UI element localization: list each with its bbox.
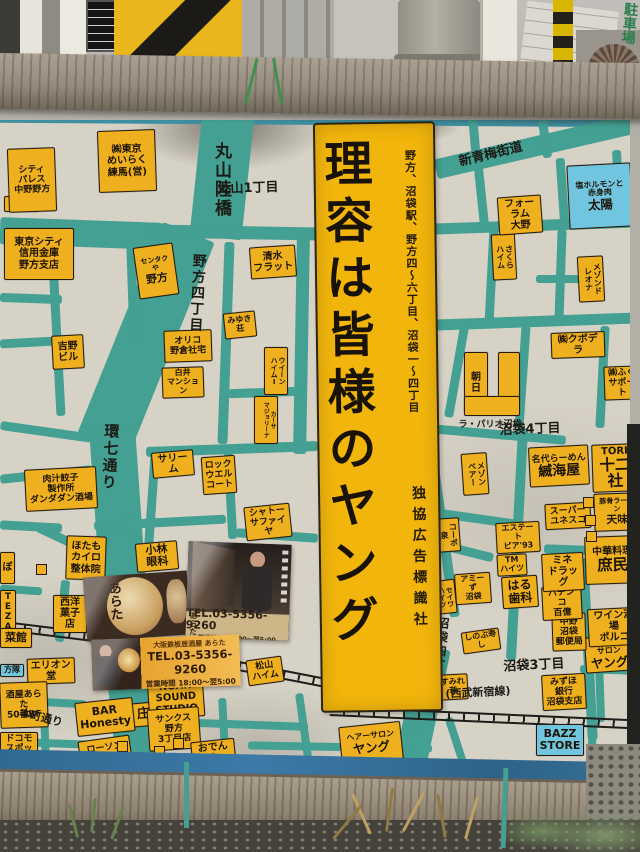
map-label: 西洋 菓子店 (53, 595, 87, 633)
figure-body (95, 656, 118, 687)
map-label: 菜館 (0, 628, 32, 648)
parking-sign: 駐車場 (611, 1, 640, 67)
figure-head (99, 645, 111, 658)
label-text-large: 庶民 (597, 557, 629, 574)
map-label: 吉野 ビル (51, 334, 85, 370)
map-text: 沼袋3丁目 (496, 656, 573, 676)
background-building-2 (334, 0, 400, 62)
figure-body (241, 566, 273, 611)
map-label: みずほ 銀行 沼袋支店 (541, 673, 587, 711)
map-label: 名代らーめん縅海屋 (528, 444, 590, 487)
map-label: ㈱クボデラ (551, 331, 606, 359)
moss-patch (500, 810, 640, 852)
paint-drip (184, 762, 189, 828)
board-right-edge-dark (627, 424, 640, 756)
alley-corridor (191, 541, 236, 611)
map-label: 塩ホルモンと 赤身肉太陽 (566, 162, 633, 229)
map-label: 白井 マンション (161, 366, 204, 398)
map-label: エステート ピア'93 (495, 521, 541, 554)
lantern-glow (117, 648, 140, 673)
door-marker (583, 497, 594, 508)
map-label: センタクや野方 (133, 242, 180, 299)
map-label: シャトー サファイヤ (243, 503, 292, 542)
label-text-large: 野方 (146, 272, 169, 286)
map-label: 小林 眼科 (135, 540, 179, 572)
map-label: カーサ マジョリーナ (254, 396, 278, 444)
map-label: 清水 フラット (249, 244, 297, 279)
map-label: メゾン ベアー (461, 452, 490, 496)
map-label (498, 352, 520, 402)
map-label: ㈱東京 めいらく 練馬(営) (97, 129, 157, 193)
map-label: サリーム (151, 449, 195, 479)
map-text: 沼袋4丁目 (492, 421, 569, 440)
map-label: 方隊 (0, 664, 24, 677)
map-label: はる 歯科 (501, 575, 539, 609)
photo-of-barber-map-board: 野方シティ パレス 中野野方東京シティ 信用金庫 野方支店㈱東京 めいらく 練馬… (0, 0, 640, 852)
door-marker (36, 564, 47, 575)
door-marker (173, 738, 184, 749)
card-text-block: 大阪鉄板居酒屋 あらた TEL.03-5356-9260 営業時間 18:00～… (143, 638, 237, 691)
map-label: アミーず 沼袋 (454, 572, 492, 605)
card-shop-name: あらた (187, 611, 199, 635)
map-label: さくら ハイム (491, 233, 517, 280)
map-text: 野方四丁目 (176, 245, 207, 340)
map-label: ウイーン ハイムⅠ (264, 347, 288, 395)
map-label: しのぶ寿し (461, 627, 502, 654)
map-text: 環七通り (89, 407, 120, 506)
map-label: ほたも カイロ 整体院 (65, 535, 107, 580)
paper-lantern-photo (105, 575, 165, 637)
door-marker (117, 741, 128, 752)
banner-area-note: 野方、沼袋駅、野方四～六丁目、沼袋一～四丁目 (403, 149, 420, 481)
map-label: みゆき 荘 (223, 310, 258, 339)
hazard-striped-sign (114, 0, 242, 60)
map-label: ぼ (0, 552, 15, 584)
background-building (242, 0, 334, 58)
label-text-large: 縅海屋 (538, 463, 581, 480)
map-text: 丸山陸橋 (202, 124, 230, 236)
second-lantern (165, 579, 188, 624)
banner-title: 理容は皆様のヤング (319, 138, 375, 699)
map-text: 新青梅街道 (445, 135, 537, 174)
card-phone: TEL.03-5356-9260 (144, 648, 237, 679)
map-label: ミネ ドラッグ (541, 552, 585, 592)
label-text-large: ヤング (352, 739, 390, 756)
label-text-large: ヤング (591, 655, 629, 671)
map-label: BAR Honesty (74, 697, 135, 737)
map-label: TM ハイツ (496, 553, 527, 576)
business-card-lantern: あらた (83, 570, 191, 641)
card-phone: TEL.03-5356-9260 (186, 607, 290, 635)
map-label: BAZZ STORE (536, 724, 584, 756)
white-post-2 (60, 0, 86, 58)
business-card-portrait: あらた TEL.03-5356-9260 営業時間 18:00～翌5:00 (185, 541, 291, 641)
board-right-edge (630, 108, 640, 426)
business-card-wide: 大阪鉄板居酒屋 あらた TEL.03-5356-9260 営業時間 18:00～… (91, 634, 241, 690)
gravel-patch-right (586, 744, 640, 820)
map-label: シティ パレス 中野野方 (7, 147, 57, 213)
map-label: 東京シティ 信用金庫 野方支店 (4, 228, 74, 280)
map-label: メゾンド レオナ (577, 255, 605, 302)
wooden-beam (0, 53, 640, 119)
figure-head (250, 551, 266, 568)
label-text-large: 太陽 (588, 198, 613, 212)
barber-banner: 理容は皆様のヤング 野方、沼袋駅、野方四～六丁目、沼袋一～四丁目 独協広告標識社 (313, 121, 443, 713)
map-label (464, 396, 520, 416)
map-label: ロック ウエル コート (201, 455, 238, 495)
door-marker (586, 531, 597, 542)
map-label: フォーラム 大野 (497, 195, 544, 236)
door-marker (585, 515, 596, 526)
card-shop-name: 大阪鉄板居酒屋 あらた (143, 638, 235, 651)
map-label: 肉汁餃子 製作所 ダンダダン酒場 (24, 466, 98, 512)
lantern-text: あらた (103, 581, 125, 621)
map-label: 松山 ハイム (245, 656, 284, 687)
shop-owner-figure (239, 551, 275, 612)
alley-photo (186, 541, 291, 615)
banner-publisher: 独協広告標識社 (408, 485, 431, 705)
label-text-large: 天味 (606, 514, 628, 526)
vertical-caption (280, 551, 288, 607)
